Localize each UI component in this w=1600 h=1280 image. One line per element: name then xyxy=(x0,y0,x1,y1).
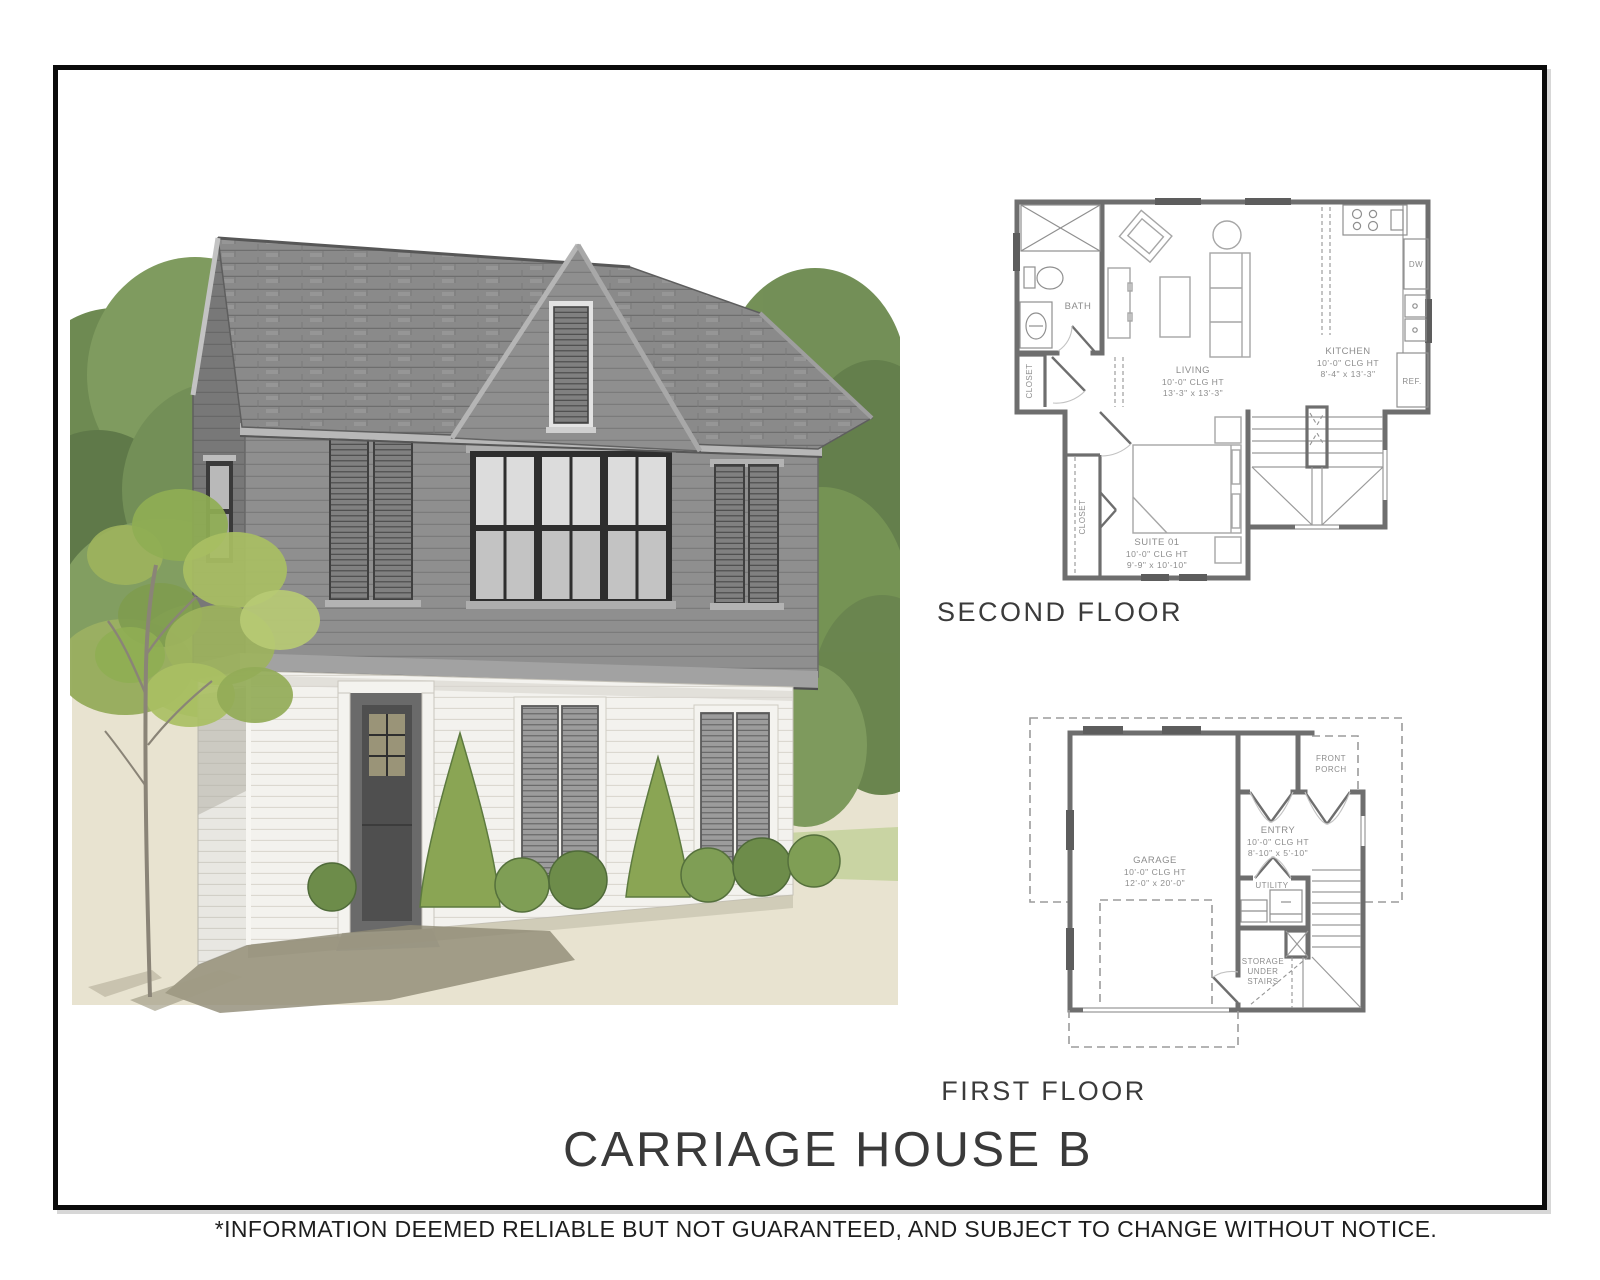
sheet-canvas: BATH CLOSET LIVING 10'-0" CLG HT 13'-3" … xyxy=(0,0,1600,1280)
bath-fixtures xyxy=(1020,205,1100,348)
front-door xyxy=(336,681,440,951)
roof xyxy=(193,238,872,457)
svg-text:8'-10" x 5'-10": 8'-10" x 5'-10" xyxy=(1248,848,1308,858)
first-floor-plan: GARAGE 10'-0" CLG HT 12'-0" x 20'-0" ENT… xyxy=(1025,700,1415,1060)
svg-text:10'-0" CLG HT: 10'-0" CLG HT xyxy=(1317,358,1380,368)
second-floor-caption: SECOND FLOOR xyxy=(880,597,1240,628)
console-icon xyxy=(1108,268,1132,338)
gable-vent xyxy=(546,301,596,433)
round-table-icon xyxy=(1213,221,1241,249)
plan-title: CARRIAGE HOUSE B xyxy=(60,1122,1596,1178)
disclaimer-text: *INFORMATION DEEMED RELIABLE BUT NOT GUA… xyxy=(56,1216,1596,1243)
svg-text:10'-0" CLG HT: 10'-0" CLG HT xyxy=(1126,549,1189,559)
label-dishwasher: DW xyxy=(1409,260,1423,269)
upper-center-window xyxy=(466,443,676,609)
toilet-icon xyxy=(1024,267,1035,288)
house-rendering xyxy=(70,225,900,1015)
sink-icon xyxy=(1020,302,1052,348)
svg-text:STAIRS: STAIRS xyxy=(1247,977,1278,986)
living-furniture xyxy=(1108,210,1250,357)
coffee-table-icon xyxy=(1160,277,1190,337)
drive-dashed-area xyxy=(1069,1010,1238,1047)
stove-icon xyxy=(1343,205,1407,235)
room-label-bath: BATH xyxy=(1065,301,1092,312)
island-dashed xyxy=(1322,207,1330,335)
armchair-icon xyxy=(1119,210,1171,262)
room-label-living: LIVING xyxy=(1176,365,1210,376)
svg-text:9'-9" x 10'-10": 9'-9" x 10'-10" xyxy=(1127,560,1187,570)
svg-text:8'-4" x 13'-3": 8'-4" x 13'-3" xyxy=(1320,369,1375,379)
kitchen-sink-icon xyxy=(1405,295,1426,341)
room-label-suite: SUITE 01 xyxy=(1134,537,1179,548)
label-refrigerator: REF. xyxy=(1402,377,1421,386)
nightstand-icon xyxy=(1215,537,1241,563)
second-floor-plan: BATH CLOSET LIVING 10'-0" CLG HT 13'-3" … xyxy=(1005,195,1435,595)
svg-text:10'-0" CLG HT: 10'-0" CLG HT xyxy=(1247,837,1310,847)
svg-text:10'-0" CLG HT: 10'-0" CLG HT xyxy=(1162,377,1225,387)
room-labels: BATH CLOSET LIVING 10'-0" CLG HT 13'-3" … xyxy=(1025,260,1423,570)
svg-text:12'-0" x 20'-0": 12'-0" x 20'-0" xyxy=(1125,878,1185,888)
first-floor-caption: FIRST FLOOR xyxy=(864,1076,1224,1107)
stairs xyxy=(1252,407,1383,525)
svg-text:10'-0" CLG HT: 10'-0" CLG HT xyxy=(1124,867,1187,877)
bed-icon xyxy=(1133,445,1241,533)
room-label-hall-closet: CLOSET xyxy=(1025,363,1034,398)
room-label-utility: UTILITY xyxy=(1255,881,1288,890)
svg-text:13'-3" x 13'-3": 13'-3" x 13'-3" xyxy=(1163,388,1223,398)
room-label-storage: STORAGE xyxy=(1242,957,1284,966)
nightstand-icon xyxy=(1215,417,1241,443)
room-label-suite-closet: CLOSET xyxy=(1078,499,1087,534)
svg-text:PORCH: PORCH xyxy=(1315,765,1346,774)
room-label-garage: GARAGE xyxy=(1133,855,1177,866)
room-label-porch: FRONT xyxy=(1316,754,1346,763)
sofa-icon xyxy=(1210,253,1250,357)
svg-text:UNDER: UNDER xyxy=(1248,967,1279,976)
room-label-entry: ENTRY xyxy=(1261,825,1296,836)
upper-left-shutter-window xyxy=(325,431,421,607)
room-label-kitchen: KITCHEN xyxy=(1325,346,1370,357)
